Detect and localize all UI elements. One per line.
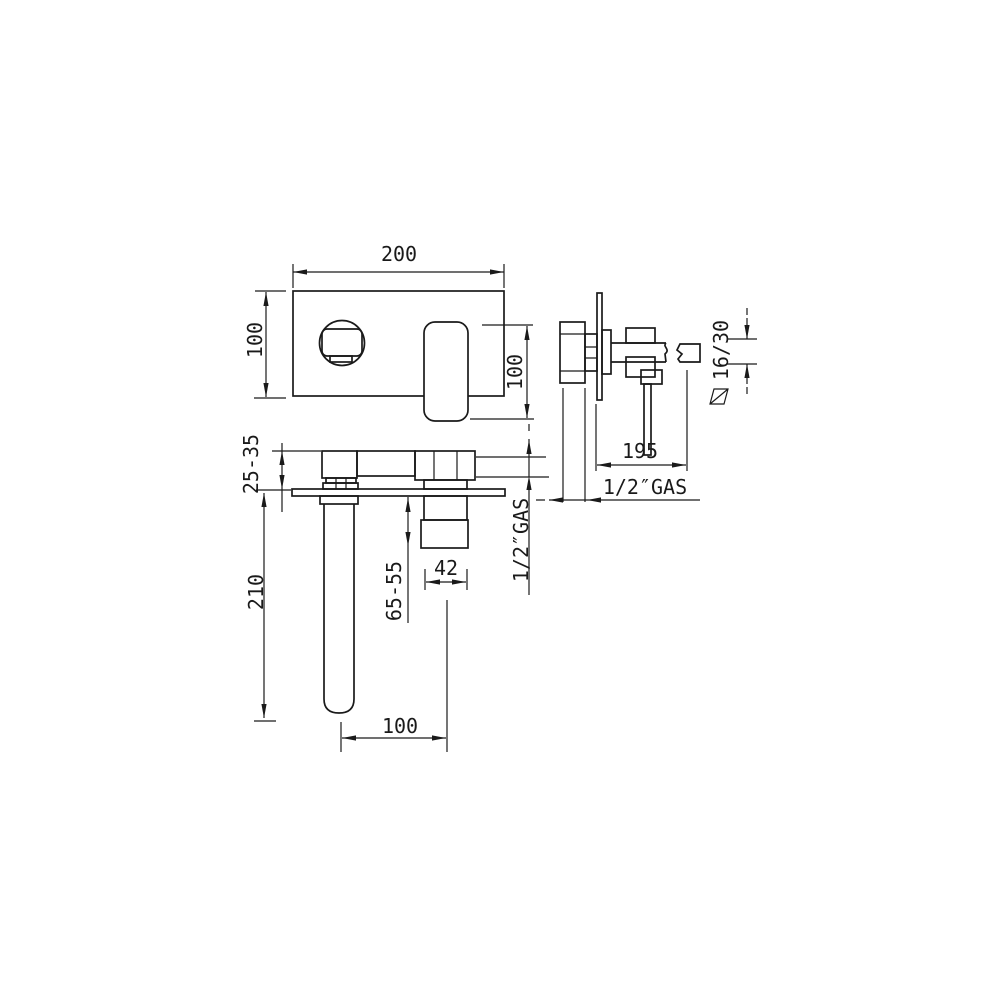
valve-body-dividers (434, 451, 457, 480)
side-view (560, 293, 700, 502)
label-inlet-gas-side: 1/2″GAS (536, 475, 700, 503)
dim-label-16-30: 16/30 (709, 320, 733, 380)
dim-section-16-30: 16/30 (709, 308, 757, 404)
dim-label-100: 100 (382, 714, 418, 738)
faucet-technical-drawing: 200 100 100 195 1/ (0, 0, 1000, 1000)
valve-neck-upper (424, 480, 467, 489)
arrowhead-down (261, 704, 266, 718)
arrowhead-up (744, 364, 749, 378)
handle-tab (330, 356, 352, 362)
arrowhead-right (452, 579, 466, 584)
arrowhead-left-2 (587, 497, 601, 502)
spout-tip-side (677, 344, 700, 362)
technical-drawing-canvas: 200 100 100 195 1/ (0, 0, 1000, 1000)
dim-label-210: 210 (244, 574, 268, 610)
arrowhead-left (293, 269, 307, 274)
square-section-symbol (710, 389, 728, 404)
outlet-thread-label: 1/2″GAS (509, 498, 533, 582)
dim-height-100-left: 100 (243, 291, 286, 398)
cartridge-lines (585, 347, 597, 358)
dim-label-200: 200 (381, 242, 417, 266)
dim-label-195: 195 (622, 439, 658, 463)
arrowhead-down (524, 404, 529, 418)
spout-nut-lower (323, 483, 358, 489)
arrowhead-left (549, 497, 563, 502)
valve-body-side (560, 322, 585, 383)
dim-spout-length-100: 100 (470, 325, 534, 419)
cartridge-stack (585, 334, 597, 371)
dim-label-100: 100 (503, 354, 527, 390)
dim-wall-clearance-25-35: 25-35 (239, 434, 321, 512)
label-outlet-gas-top: 1/2″GAS (476, 424, 549, 595)
arrowhead-up (526, 440, 531, 454)
spout-tube (324, 504, 354, 713)
dim-spout-offset-100: 100 (341, 600, 447, 752)
arrowhead-down (744, 325, 749, 339)
arrowhead-left (426, 579, 440, 584)
arrowhead-up (261, 493, 266, 507)
dim-projection-195: 195 (596, 370, 687, 471)
wall-plate-top (292, 489, 505, 496)
arrowhead-up (279, 451, 284, 465)
arrowhead-up-2 (526, 476, 531, 490)
spout-arm-side (611, 343, 667, 362)
dim-label-42: 42 (434, 556, 458, 580)
valve-body-top (415, 451, 475, 480)
handle-rosette (320, 321, 365, 366)
inlet-extension-lines (563, 388, 585, 502)
arrowhead-down (405, 532, 410, 546)
dim-cartridge-42: 42 (425, 556, 467, 590)
arrowhead-left (597, 462, 611, 467)
arrowhead-up (263, 292, 268, 306)
dim-label-100: 100 (243, 322, 267, 358)
dim-body-depth-65-55: 65-55 (382, 497, 411, 623)
inlet-block (421, 520, 468, 548)
arrowhead-up (524, 326, 529, 340)
dim-spout-drop-210: 210 (244, 493, 276, 721)
handle-front (322, 329, 362, 356)
arrowhead-right (672, 462, 686, 467)
dim-label-25-35: 25-35 (239, 434, 263, 494)
arrowhead-right (490, 269, 504, 274)
arrowhead-left (342, 735, 356, 740)
inlet-thread-label: 1/2″GAS (603, 475, 687, 499)
spout-arm-top (357, 451, 415, 476)
arrowhead-down (279, 475, 284, 489)
arrowhead-down (263, 383, 268, 397)
wall-plate-front (293, 291, 504, 396)
spout-block-upper (626, 328, 655, 343)
plate-flange (602, 330, 611, 374)
spout-collar (320, 496, 358, 504)
dim-width-200: 200 (293, 242, 504, 288)
spout-cover-front (424, 322, 468, 421)
arrowhead-right (432, 735, 446, 740)
dim-lines (293, 264, 504, 288)
front-view (293, 291, 504, 421)
valve-body-lines (560, 334, 585, 371)
valve-neck-lower (424, 496, 467, 520)
arrowhead-up (405, 498, 410, 512)
dim-label-65-55: 65-55 (382, 561, 406, 621)
spout-base-block (322, 451, 357, 478)
dim-lines (256, 443, 321, 512)
